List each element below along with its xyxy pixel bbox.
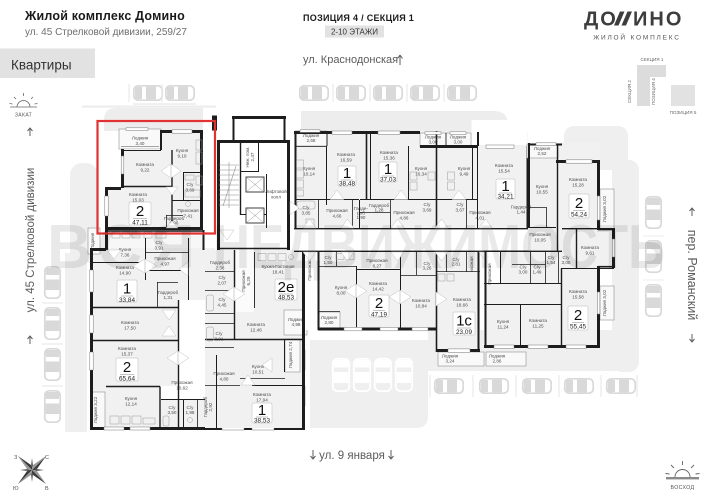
svg-text:2,86: 2,86 (493, 358, 502, 363)
svg-text:С/у: С/у (219, 297, 227, 302)
svg-text:Комната: Комната (569, 289, 587, 294)
svg-text:15,36: 15,36 (383, 156, 395, 161)
svg-text:Комната: Комната (129, 192, 147, 197)
svg-text:15,58: 15,58 (572, 295, 584, 300)
svg-text:37,03: 37,03 (380, 176, 396, 183)
svg-text:Комната: Комната (121, 320, 139, 325)
svg-text:47,19: 47,19 (371, 311, 387, 318)
svg-text:ПОЗИЦИЯ 4 / СЕКЦИЯ 1: ПОЗИЦИЯ 4 / СЕКЦИЯ 1 (303, 13, 414, 23)
svg-text:38,48: 38,48 (339, 180, 355, 187)
svg-text:Комната: Комната (380, 150, 398, 155)
svg-text:ПОЗИЦИЯ 5: ПОЗИЦИЯ 5 (670, 110, 697, 115)
svg-text:Жилой комплекс Домино: Жилой комплекс Домино (24, 9, 185, 23)
svg-text:С/у: С/у (187, 182, 195, 187)
svg-text:Лоджия 3,22: Лоджия 3,22 (93, 396, 98, 423)
svg-text:3,69: 3,69 (423, 208, 432, 213)
svg-text:Кухня: Кухня (497, 319, 510, 324)
svg-text:11,24: 11,24 (497, 325, 509, 330)
svg-text:Комната: Комната (453, 297, 471, 302)
svg-text:Лоджия: Лоджия (132, 136, 149, 141)
svg-text:10,51: 10,51 (252, 370, 264, 375)
svg-text:Комната: Комната (529, 318, 547, 323)
svg-text:Кухня: Кухня (335, 285, 348, 290)
svg-text:2,52: 2,52 (538, 151, 547, 156)
svg-text:1,31: 1,31 (164, 295, 173, 300)
svg-text:ПОЗИЦИЯ 4: ПОЗИЦИЯ 4 (651, 78, 656, 105)
svg-text:Лоджия 3,02: Лоджия 3,02 (602, 289, 607, 316)
svg-text:3,40: 3,40 (136, 141, 145, 146)
svg-text:Квартиры: Квартиры (11, 58, 72, 73)
svg-text:3,24: 3,24 (446, 358, 455, 363)
svg-text:12,46: 12,46 (250, 328, 262, 333)
svg-text:ЖИЛОЙ КОМПЛЕКС: ЖИЛОЙ КОМПЛЕКС (593, 33, 681, 42)
svg-text:ДО: ДО (584, 9, 618, 31)
svg-text:Кухня: Кухня (536, 184, 549, 189)
svg-text:Кухня: Кухня (415, 166, 428, 171)
svg-text:9,10: 9,10 (178, 154, 187, 159)
svg-text:2,68: 2,68 (307, 138, 316, 143)
svg-text:Комната: Комната (136, 162, 154, 167)
svg-text:2,92: 2,92 (208, 402, 213, 411)
svg-text:Кухня: Кухня (125, 396, 138, 401)
svg-text:2: 2 (575, 195, 583, 212)
svg-text:18,66: 18,66 (456, 303, 468, 308)
svg-text:ИНО: ИНО (633, 9, 683, 31)
svg-text:Ю: Ю (13, 486, 19, 492)
svg-text:12,14: 12,14 (125, 402, 137, 407)
svg-text:С: С (45, 455, 49, 461)
svg-text:34,21: 34,21 (498, 193, 514, 200)
svg-text:2: 2 (123, 359, 131, 376)
svg-text:Комната: Комната (495, 163, 513, 168)
svg-text:2: 2 (375, 295, 383, 312)
svg-text:65,64: 65,64 (119, 376, 135, 383)
svg-text:4,98: 4,98 (292, 322, 301, 327)
svg-text:15,28: 15,28 (572, 183, 584, 188)
svg-text:Лоджия 2,74: Лоджия 2,74 (288, 341, 293, 368)
svg-text:холл: холл (271, 195, 281, 200)
svg-text:Кухня: Кухня (458, 166, 471, 171)
svg-text:ул. 45 Стрелковой дивизии: ул. 45 Стрелковой дивизии (25, 168, 37, 313)
svg-text:3,69: 3,69 (186, 188, 195, 193)
svg-text:СЕКЦИЯ 2: СЕКЦИЯ 2 (627, 80, 632, 103)
svg-text:38,53: 38,53 (254, 417, 270, 424)
svg-text:1,98: 1,98 (186, 410, 195, 415)
svg-text:8,00: 8,00 (337, 291, 346, 296)
svg-text:1: 1 (123, 281, 131, 298)
svg-text:2,47: 2,47 (250, 152, 255, 161)
svg-text:1,28: 1,28 (375, 208, 384, 213)
svg-text:33,84: 33,84 (119, 297, 135, 304)
svg-text:ул. 9 января: ул. 9 января (319, 450, 385, 462)
svg-text:1с: 1с (456, 313, 472, 330)
svg-text:ВОСХОД: ВОСХОД (671, 485, 695, 491)
svg-text:пер. Романский: пер. Романский (685, 230, 699, 321)
svg-text:Кухня: Кухня (303, 166, 316, 171)
svg-text:3,00: 3,00 (454, 139, 463, 144)
svg-text:ВСЯ: ВСЯ (47, 213, 203, 282)
svg-text:2-10 ЭТАЖИ: 2-10 ЭТАЖИ (331, 28, 378, 37)
svg-text:2: 2 (574, 307, 582, 324)
svg-text:ул. Краснодонская: ул. Краснодонская (303, 54, 398, 66)
svg-text:11,25: 11,25 (532, 324, 544, 329)
svg-text:3,67: 3,67 (456, 208, 465, 213)
svg-text:15,54: 15,54 (498, 169, 510, 174)
svg-text:10,84: 10,84 (415, 304, 427, 309)
svg-text:ул. 45 Стрелковой дивизии, 259: ул. 45 Стрелковой дивизии, 259/27 (25, 27, 187, 38)
svg-text:ЗАКАТ: ЗАКАТ (15, 113, 32, 119)
svg-text:Кухня: Кухня (176, 148, 189, 153)
svg-text:4,45: 4,45 (218, 303, 227, 308)
svg-text:Комната: Комната (569, 177, 587, 182)
svg-text:Комната: Комната (118, 346, 136, 351)
svg-text:10,14: 10,14 (303, 172, 315, 177)
svg-text:2,80: 2,80 (325, 320, 334, 325)
svg-text:55,45: 55,45 (570, 324, 586, 331)
svg-text:3,50: 3,50 (168, 410, 177, 415)
svg-text:С/у: С/у (457, 202, 465, 207)
svg-text:С/у: С/у (424, 202, 432, 207)
svg-text:10,55: 10,55 (536, 190, 548, 195)
svg-text:Прихожая: Прихожая (171, 380, 193, 385)
svg-text:Лифтовой: Лифтовой (265, 188, 287, 194)
svg-text:Комната: Комната (247, 322, 265, 327)
svg-text:Комната: Комната (253, 392, 271, 397)
svg-text:В: В (45, 486, 49, 492)
svg-text:4,80: 4,80 (220, 377, 229, 382)
svg-text:Комната: Комната (412, 298, 430, 303)
svg-text:Комната: Комната (337, 152, 355, 157)
svg-text:СЕКЦИЯ 1: СЕКЦИЯ 1 (641, 57, 664, 62)
svg-text:15,37: 15,37 (121, 352, 133, 357)
svg-text:17,50: 17,50 (124, 326, 136, 331)
svg-text:14,42: 14,42 (372, 287, 384, 292)
svg-text:48,53: 48,53 (278, 294, 294, 301)
svg-text:9,22: 9,22 (141, 168, 150, 173)
svg-text:С/у: С/у (216, 331, 224, 336)
svg-text:23,09: 23,09 (456, 329, 472, 336)
svg-text:16,59: 16,59 (340, 158, 352, 163)
svg-text:НЕДВИЖИМОСТЬ: НЕДВИЖИМОСТЬ (213, 213, 665, 282)
svg-text:9,49: 9,49 (460, 172, 469, 177)
